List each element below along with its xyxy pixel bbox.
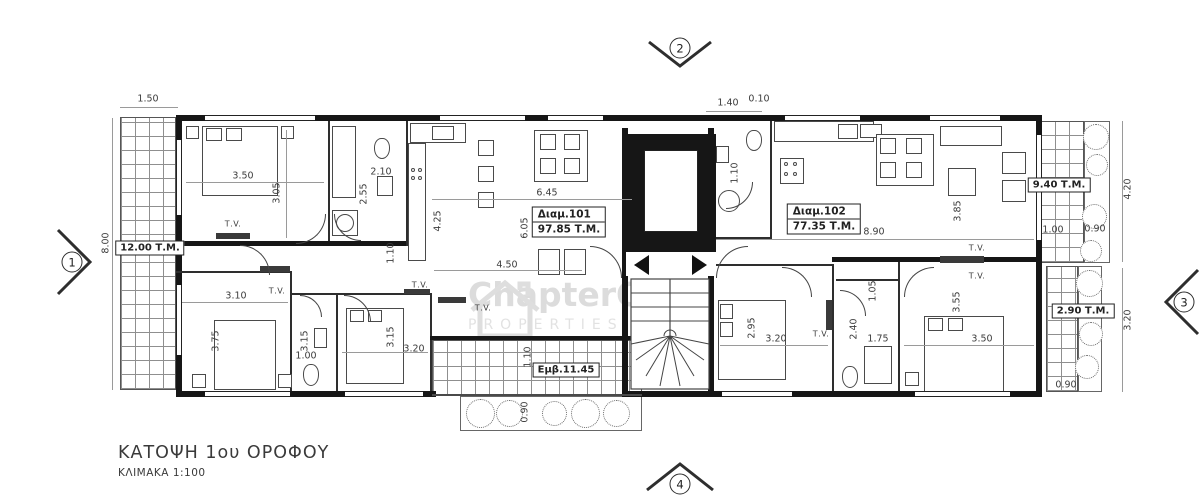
wall-bed4-right <box>832 264 834 391</box>
dim-bath1-inner: 1.10 <box>386 242 397 263</box>
chair <box>564 134 580 150</box>
dim-line <box>286 130 287 238</box>
dim-line <box>434 270 582 271</box>
elevator-cabin <box>644 150 698 232</box>
door-arc-entry-101 <box>590 246 622 278</box>
apartment-102-area: 77.35 Τ.Μ. <box>788 219 860 234</box>
dim-line <box>186 182 324 183</box>
toilet <box>303 364 319 386</box>
dim-bed5-height: 3.55 <box>952 291 963 312</box>
kitchen-sink <box>432 126 454 140</box>
tv-unit <box>826 300 832 330</box>
orientation-marker-2-number: 2 <box>670 38 691 59</box>
dim-line <box>1122 268 1123 392</box>
window <box>205 391 290 397</box>
plan-title: ΚΑΤΟΨΗ 1ου ΟΡΟΦΟΥ <box>118 443 329 463</box>
chair <box>906 138 922 154</box>
dim-bath1-height: 2.55 <box>359 183 370 204</box>
dim-line <box>342 352 428 353</box>
window <box>722 391 792 397</box>
tree <box>1079 322 1103 346</box>
dim-line <box>112 118 113 390</box>
tv-label: Τ.V. <box>475 304 491 313</box>
stove-burner <box>418 168 422 172</box>
toilet <box>374 138 390 159</box>
dim-bath2-width: 1.10 <box>730 162 741 183</box>
door-arc-bath3 <box>840 290 866 316</box>
pillow <box>720 304 733 319</box>
dim-balcony-rt-height: 4.20 <box>1123 178 1134 199</box>
wall-bed3-right <box>430 293 432 391</box>
tree <box>1086 154 1108 176</box>
wall-bed5-top <box>832 257 1042 262</box>
balcony-bottom-railing <box>432 394 642 396</box>
pillow <box>948 318 963 331</box>
nightstand <box>192 374 206 388</box>
dim-living2-height: 3.85 <box>953 200 964 221</box>
balcony-right-bottom-grid <box>1046 266 1078 392</box>
bar-stool <box>478 192 494 208</box>
dim-bath3-width: 1.75 <box>867 334 888 345</box>
window <box>345 391 423 397</box>
door-arc-bed2 <box>240 245 270 275</box>
dim-balcony-rb-height: 3.20 <box>1123 309 1134 330</box>
dim-bath3-height: 2.40 <box>849 318 860 339</box>
dim-bed2-width: 3.10 <box>225 291 246 302</box>
balcony-bottom-area-label: Εμβ.11.45 <box>533 363 600 378</box>
tv-label: Τ.V. <box>969 272 985 281</box>
coffee-table <box>948 168 976 196</box>
dim-balcony-rt-width: 1.00 <box>1042 225 1063 236</box>
dim-line <box>1122 121 1123 262</box>
chair <box>880 162 896 178</box>
dim-bed4-height: 2.95 <box>747 317 758 338</box>
armchair <box>1002 180 1026 202</box>
apartment-101-name: Διαμ.101 <box>533 208 605 222</box>
dim-line <box>120 107 178 108</box>
tv-label: Τ.V. <box>269 287 285 296</box>
door-arc-entry-102 <box>716 246 748 278</box>
dim-left-height: 8.00 <box>101 232 112 253</box>
balcony-right-bottom-area-label: 2.90 Τ.Μ. <box>1052 304 1115 319</box>
dim-balcony-rt-planter: 0.90 <box>1084 224 1105 235</box>
door-arc-bath1 <box>334 214 361 241</box>
door-arc-wc <box>300 295 322 317</box>
dim-bed5-width: 3.50 <box>971 334 992 345</box>
bar-stool <box>478 140 494 156</box>
pillow <box>226 128 242 141</box>
apartment-101-area: 97.85 Τ.Μ. <box>533 222 605 237</box>
balcony-left-area-label: 12.00 Τ.Μ. <box>115 241 184 256</box>
tree <box>1075 355 1099 379</box>
window <box>176 140 182 215</box>
stove-burner <box>793 172 797 176</box>
tree <box>1083 124 1109 150</box>
dim-line <box>716 239 1034 240</box>
armchair <box>538 249 560 275</box>
door-arc-bath2 <box>726 182 753 209</box>
dim-top-wall: 0.10 <box>748 94 769 105</box>
dim-bath3-entry: 1.05 <box>868 280 879 301</box>
dim-bed4-width: 3.20 <box>765 334 786 345</box>
wall-bath3-right <box>898 260 900 391</box>
tree <box>542 401 567 426</box>
bar-stool <box>478 166 494 182</box>
wall-living-balcony <box>430 336 642 340</box>
window <box>440 115 525 121</box>
dim-bed1-height: 3.05 <box>272 182 283 203</box>
door-arc-bed5 <box>904 267 934 297</box>
stove-burner <box>418 176 422 180</box>
dim-line <box>182 302 288 303</box>
door-arc-bed1 <box>296 214 326 244</box>
dim-line <box>432 199 632 200</box>
apartment-102-name: Διαμ.102 <box>788 205 860 219</box>
chair <box>564 158 580 174</box>
orientation-marker-1-number: 1 <box>62 252 83 273</box>
floor-plan: ChapterONE PROPERTIES <box>0 0 1200 503</box>
toilet <box>842 366 858 388</box>
tv-label: Τ.V. <box>813 330 829 339</box>
tv-unit <box>438 297 466 303</box>
nightstand <box>905 372 919 386</box>
dim-line <box>706 111 762 112</box>
stove-burner <box>411 176 415 180</box>
dim-living-height: 6.05 <box>520 217 531 238</box>
sofa <box>940 126 1002 146</box>
tv-unit <box>404 289 430 294</box>
dim-kitchen-height: 4.25 <box>433 210 444 231</box>
tv-unit <box>216 233 250 239</box>
bathtub <box>332 126 356 198</box>
sink <box>716 146 729 163</box>
dim-apt102-width: 8.90 <box>863 227 884 238</box>
shower <box>864 346 892 384</box>
door-arc-bed4 <box>782 267 812 297</box>
tree <box>1076 270 1103 297</box>
chair <box>540 134 556 150</box>
pillow <box>720 322 733 337</box>
dim-balcony-bottom-planter: 0.90 <box>520 401 531 422</box>
balcony-right-top-area-label: 9.40 Τ.Μ. <box>1028 178 1091 193</box>
nightstand <box>186 126 199 139</box>
wall-bath2-right <box>770 121 772 237</box>
dim-bed1-width: 3.50 <box>232 171 253 182</box>
orientation-marker-4-number: 4 <box>670 474 691 495</box>
stove-burner <box>793 162 797 166</box>
dim-living-width: 4.50 <box>496 260 517 271</box>
entry-arrow-left-icon <box>634 255 649 275</box>
stove-burner <box>411 168 415 172</box>
chair <box>540 158 556 174</box>
chair <box>880 138 896 154</box>
sink <box>377 176 393 196</box>
pillow <box>928 318 943 331</box>
bed <box>214 320 276 390</box>
window <box>176 285 182 355</box>
stove-burner <box>784 172 788 176</box>
dim-bed3-height: 3.15 <box>386 326 397 347</box>
staircase <box>630 278 710 390</box>
tv-unit <box>940 256 984 263</box>
tree <box>603 400 630 427</box>
dim-top-entry: 1.40 <box>717 98 738 109</box>
dim-kitchen-width: 6.45 <box>536 188 557 199</box>
tv-label: Τ.V. <box>225 220 241 229</box>
window <box>548 115 603 121</box>
pillow <box>206 128 222 141</box>
title-block: ΚΑΤΟΨΗ 1ου ΟΡΟΦΟΥ ΚΛΙΜΑΚΑ 1:100 <box>118 443 329 479</box>
dim-line <box>904 345 1034 346</box>
armchair <box>1002 152 1026 174</box>
tv-label: Τ.V. <box>969 244 985 253</box>
window <box>205 115 315 121</box>
dim-bath1-width: 2.10 <box>370 167 391 178</box>
nightstand <box>278 374 292 388</box>
tv-label: Τ.V. <box>412 281 428 290</box>
fridge <box>838 124 858 139</box>
dim-line <box>720 345 828 346</box>
kitchen-counter <box>774 121 874 142</box>
dim-wc-height: 3.15 <box>300 330 311 351</box>
dim-balcony-rb-planter: 0.90 <box>1055 380 1076 391</box>
wall-bed1-bottom <box>176 241 408 246</box>
nightstand <box>281 126 294 139</box>
plan-scale: ΚΛΙΜΑΚΑ 1:100 <box>118 467 329 479</box>
wall-wc-top <box>290 293 338 295</box>
toilet <box>746 130 762 151</box>
tree <box>466 399 495 428</box>
window <box>930 115 1000 121</box>
chair <box>906 162 922 178</box>
entry-arrow-right-icon <box>692 255 707 275</box>
window <box>915 391 1010 397</box>
door-arc-bed3 <box>344 295 371 322</box>
dim-bed2-height: 3.75 <box>211 330 222 351</box>
apartment-102-label-box: Διαμ.102 77.35 Τ.Μ. <box>787 204 861 235</box>
tree <box>1080 240 1102 262</box>
armchair <box>564 249 586 275</box>
wall-bed1-bath1 <box>328 121 330 241</box>
dim-top-left-width: 1.50 <box>137 94 158 105</box>
wall-bed2-right <box>290 271 292 391</box>
orientation-marker-3-number: 3 <box>1174 292 1195 313</box>
tree <box>571 399 600 428</box>
dim-wc-width: 1.00 <box>295 351 316 362</box>
apartment-101-label-box: Διαμ.101 97.85 Τ.Μ. <box>532 207 606 238</box>
stove-burner <box>784 162 788 166</box>
wall-wc-right <box>336 293 338 391</box>
window <box>785 115 860 121</box>
sink <box>314 328 327 348</box>
kitchen-counter-side <box>408 143 426 261</box>
